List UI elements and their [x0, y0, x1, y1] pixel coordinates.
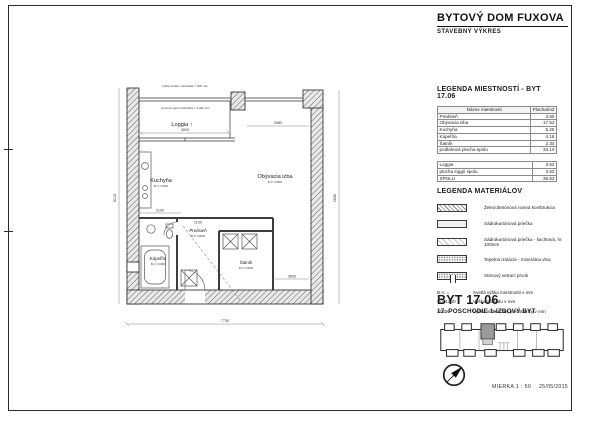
highlighted-unit [481, 324, 494, 339]
railing-note-solid: výška plného zábradlia = 900 mm [162, 84, 209, 88]
drawing-type: STAVEBNÝ VÝKRES [437, 29, 568, 35]
room-area-cell: 5.26 [531, 127, 557, 134]
table-row: Predsieň3.80 [438, 113, 557, 120]
legend-item-label: Sádrokartónová priečka [484, 221, 533, 226]
unit-floor-type: 17. POSCHODIE 1-IZBOVÝ BYT [437, 308, 536, 315]
dim-loggia-width: 3000 [181, 128, 189, 132]
rooms-legend-heading: LEGENDA MIESTNOSTÍ - BYT 17.06 [437, 86, 561, 100]
loggia-areas-table: Loggia3.52 plocha loggií spolu3.52 SPOLU… [437, 161, 557, 182]
room-label-predsien: Predsieň [189, 228, 207, 233]
legend-item-label: Stenový vetrací prvok [484, 273, 528, 278]
table-row: Kuchyňa5.26 [438, 127, 557, 134]
north-arrow-icon [440, 361, 468, 394]
fold-mark [4, 149, 13, 150]
wc-bowl [166, 230, 172, 239]
entry-door-swing [185, 270, 205, 290]
bathtub [141, 246, 169, 288]
dim-total-width: 7730 [221, 319, 229, 323]
thermal-insulation-swatch [437, 255, 467, 263]
wall-bottom [127, 290, 323, 304]
wall-vent-block [127, 262, 139, 272]
room-name-cell: Kuchyňa [438, 127, 531, 134]
legend-item-label: Sádrokartónová priečka - šachtová, hr. 1… [484, 237, 568, 247]
legend-item-label: Tepelná izolácia - minerálna vlna [484, 257, 551, 262]
floor-plan-svg: výška plného zábradlia = 900 mm oceľová … [85, 76, 377, 348]
subtotal-row: podlahová plocha spolu33.10 [438, 147, 557, 154]
room-area-cell: 3.80 [531, 113, 557, 120]
dim-hall-width: 1100 [194, 221, 202, 225]
room-area-cell: 3.52 [533, 162, 557, 169]
column-header-area: Plocha/m2 [531, 107, 557, 114]
legend-item-label: Železobetónová nosná konštrukcia [484, 205, 555, 210]
scale-label: MIERKA 1 : 50 [492, 384, 531, 390]
legend-item: Sádrokartónová priečka - šachtová, hr. 1… [437, 237, 568, 247]
dim-total-height: 5210 [113, 194, 117, 202]
room-area-cell: 2.34 [531, 140, 557, 147]
total-label: SPOLU [438, 175, 533, 182]
table-header-row: Názov miestnosti Plocha/m2 [438, 107, 557, 114]
plasterboard-shaft-partition-swatch [437, 238, 467, 246]
dim-living-inner: 3600 [288, 275, 296, 279]
room-areas-table: Názov miestnosti Plocha/m2 Predsieň3.80 … [437, 106, 557, 154]
room-name-cell: Šatník [438, 140, 531, 147]
washbasin [147, 225, 155, 233]
entry-opening [185, 291, 205, 304]
loggia-subtotal-label: plocha loggií spolu [438, 168, 533, 175]
legend-item: Sádrokartónová priečka [437, 220, 568, 228]
room-bv-predsien: B.V.=2600 [191, 234, 206, 238]
materials-legend-heading: LEGENDA MATERIÁLOV [437, 188, 568, 195]
room-label-loggia: Loggia ↑ [171, 122, 192, 128]
info-panel: BYTOVÝ DOM FUXOVA STAVEBNÝ VÝKRES LEGEND… [437, 12, 568, 410]
rooms-legend: LEGENDA MIESTNOSTÍ - BYT 17.06 Názov mie… [437, 86, 561, 182]
reinforced-concrete-hatch-swatch [437, 204, 467, 212]
building-key-plan [437, 318, 567, 367]
railing-and-windows [139, 98, 303, 141]
table-row: Loggia3.52 [438, 162, 557, 169]
room-area-cell: 17.52 [531, 120, 557, 127]
dim-right-height: 2630 [333, 194, 337, 202]
room-bv-kuchyna: B.V.=2600 [154, 184, 169, 188]
project-title: BYTOVÝ DOM FUXOVA [437, 12, 568, 27]
title-block: BYTOVÝ DOM FUXOVA STAVEBNÝ VÝKRES [437, 12, 568, 35]
column-header-name: Názov miestnosti [438, 107, 531, 114]
room-label-satnik: Šatník [240, 260, 253, 265]
exterior-walls [127, 88, 323, 304]
total-row: SPOLU36.62 [438, 175, 557, 182]
drawing-sheet: výška plného zábradlia = 900 mm oceľová … [0, 0, 600, 426]
loggia-subtotal-row: plocha loggií spolu3.52 [438, 168, 557, 175]
total-value: 36.62 [533, 175, 557, 182]
kitchen-sink [142, 163, 149, 170]
dim-kitchen-width: 2100 [156, 209, 164, 213]
vent-gap-mark [450, 275, 456, 283]
subtotal-label: podlahová plocha spolu [438, 147, 531, 154]
unit-number: BYT 17.06 [437, 293, 536, 307]
room-bv-satnik: B.V.=2600 [239, 266, 254, 270]
room-name-cell: Loggia [438, 162, 533, 169]
key-plan-svg [437, 318, 567, 362]
legend-item: Tepelná izolácia - minerálna vlna [437, 255, 568, 263]
room-label-kupelna: Kúpeľňa [150, 256, 167, 261]
building-body [441, 329, 563, 350]
wall-right [311, 106, 323, 304]
room-name-cell: Predsieň [438, 113, 531, 120]
railing-note-infill: oceľová výplň zábradlia = 1100 mm [161, 106, 210, 110]
dim-living-width: 2980 [274, 121, 282, 125]
loggia-subtotal-value: 3.52 [533, 168, 557, 175]
unit-block: BYT 17.06 17. POSCHODIE 1-IZBOVÝ BYT [437, 293, 536, 315]
loggia-pillar [231, 92, 245, 110]
highlighted-unit-loggia [483, 339, 493, 345]
subtotal-value: 33.10 [531, 147, 557, 154]
table-row: Šatník2.34 [438, 140, 557, 147]
room-area-cell: 4.18 [531, 133, 557, 140]
date-label: 25/05/2015 [539, 384, 568, 390]
fold-mark [4, 231, 13, 232]
floor-plan-drawing: výška plného zábradlia = 900 mm oceľová … [85, 76, 377, 353]
hob-ring [143, 194, 148, 199]
table-row: Obývacia izba17.52 [438, 120, 557, 127]
hob-ring [143, 186, 148, 191]
wall-corner-top-right [303, 90, 323, 108]
wall-vent-element-swatch [437, 272, 467, 280]
plasterboard-partition-swatch [437, 220, 467, 228]
room-bv-kupelna: B.V.=2400 [151, 262, 166, 266]
room-name-cell: Obývacia izba [438, 120, 531, 127]
room-bv-obyvacia: B.V.=2600 [268, 180, 283, 184]
table-row: Kúpeľňa4.18 [438, 133, 557, 140]
legend-item: Železobetónová nosná konštrukcia [437, 204, 568, 212]
legend-item: Stenový vetrací prvok [437, 272, 568, 280]
room-name-cell: Kúpeľňa [438, 133, 531, 140]
